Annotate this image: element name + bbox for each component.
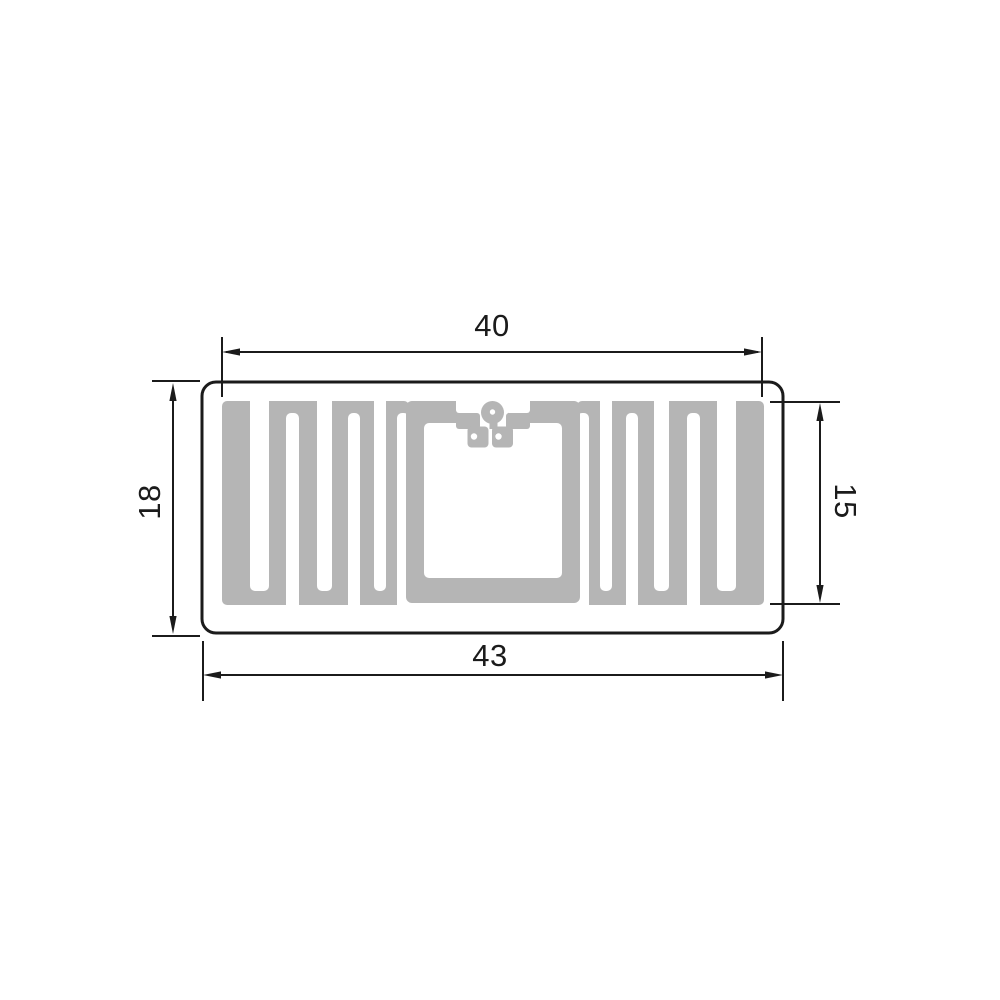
- drawing-canvas: 40 43 18 15: [0, 0, 1000, 1000]
- dimension-label-left-height: 18: [132, 484, 167, 519]
- arrow-head-down: [169, 616, 176, 634]
- dimension-label-bottom-width: 43: [472, 638, 507, 673]
- feed-notch-right: [506, 395, 530, 413]
- rfid-inlay-dimension-drawing: 40 43 18 15: [0, 0, 1000, 1000]
- arrow-head-down: [816, 585, 823, 603]
- meander-slot: [374, 385, 386, 591]
- arrow-head-up: [169, 383, 176, 401]
- meander-slot: [626, 413, 638, 623]
- arrow-head-up: [816, 403, 823, 421]
- chip-pad-right: [492, 427, 513, 448]
- meander-slot: [286, 413, 299, 623]
- chip-circle-hole: [490, 409, 495, 414]
- arrow-head-right: [744, 348, 762, 355]
- meander-slot: [348, 413, 360, 623]
- chip-pad-hole: [471, 433, 477, 439]
- arrow-head-right: [765, 671, 783, 678]
- loop-window: [424, 423, 562, 578]
- meander-slot: [250, 385, 269, 591]
- meander-slot: [717, 385, 736, 591]
- meander-slot: [317, 385, 332, 591]
- arrow-head-left: [222, 348, 240, 355]
- dimension-label-top-width: 40: [474, 308, 509, 343]
- meander-slot: [687, 413, 700, 623]
- arrow-head-left: [203, 671, 221, 678]
- meander-slot: [600, 385, 612, 591]
- antenna-pattern: [222, 385, 764, 623]
- dimension-label-right-height: 15: [828, 483, 863, 518]
- chip-pad-hole: [495, 433, 501, 439]
- meander-slot: [654, 385, 669, 591]
- feed-notch-left: [456, 395, 480, 413]
- chip-pad-left: [468, 427, 489, 448]
